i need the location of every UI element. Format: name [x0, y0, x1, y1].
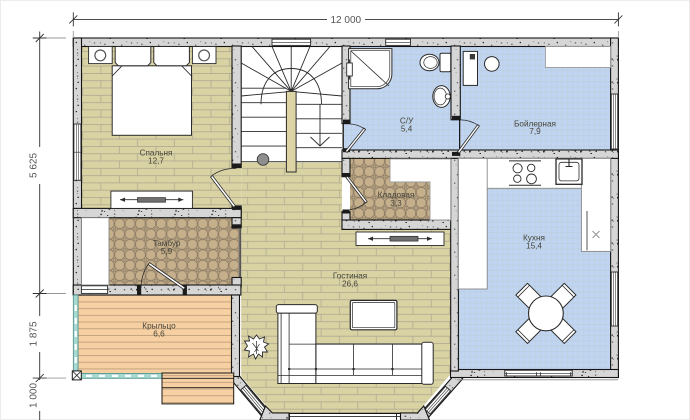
svg-text:12,7: 12,7: [148, 157, 164, 166]
svg-text:12 000: 12 000: [331, 15, 362, 26]
svg-text:5,9: 5,9: [161, 247, 173, 256]
svg-text:15,4: 15,4: [526, 242, 542, 251]
svg-text:1 875: 1 875: [29, 321, 40, 346]
svg-text:6,6: 6,6: [153, 330, 165, 339]
svg-text:26,6: 26,6: [342, 280, 358, 289]
svg-text:7,9: 7,9: [529, 127, 541, 136]
svg-text:5 625: 5 625: [29, 153, 40, 178]
svg-text:1 000: 1 000: [29, 383, 40, 408]
svg-text:3,3: 3,3: [390, 199, 402, 208]
svg-text:5,4: 5,4: [401, 125, 413, 134]
